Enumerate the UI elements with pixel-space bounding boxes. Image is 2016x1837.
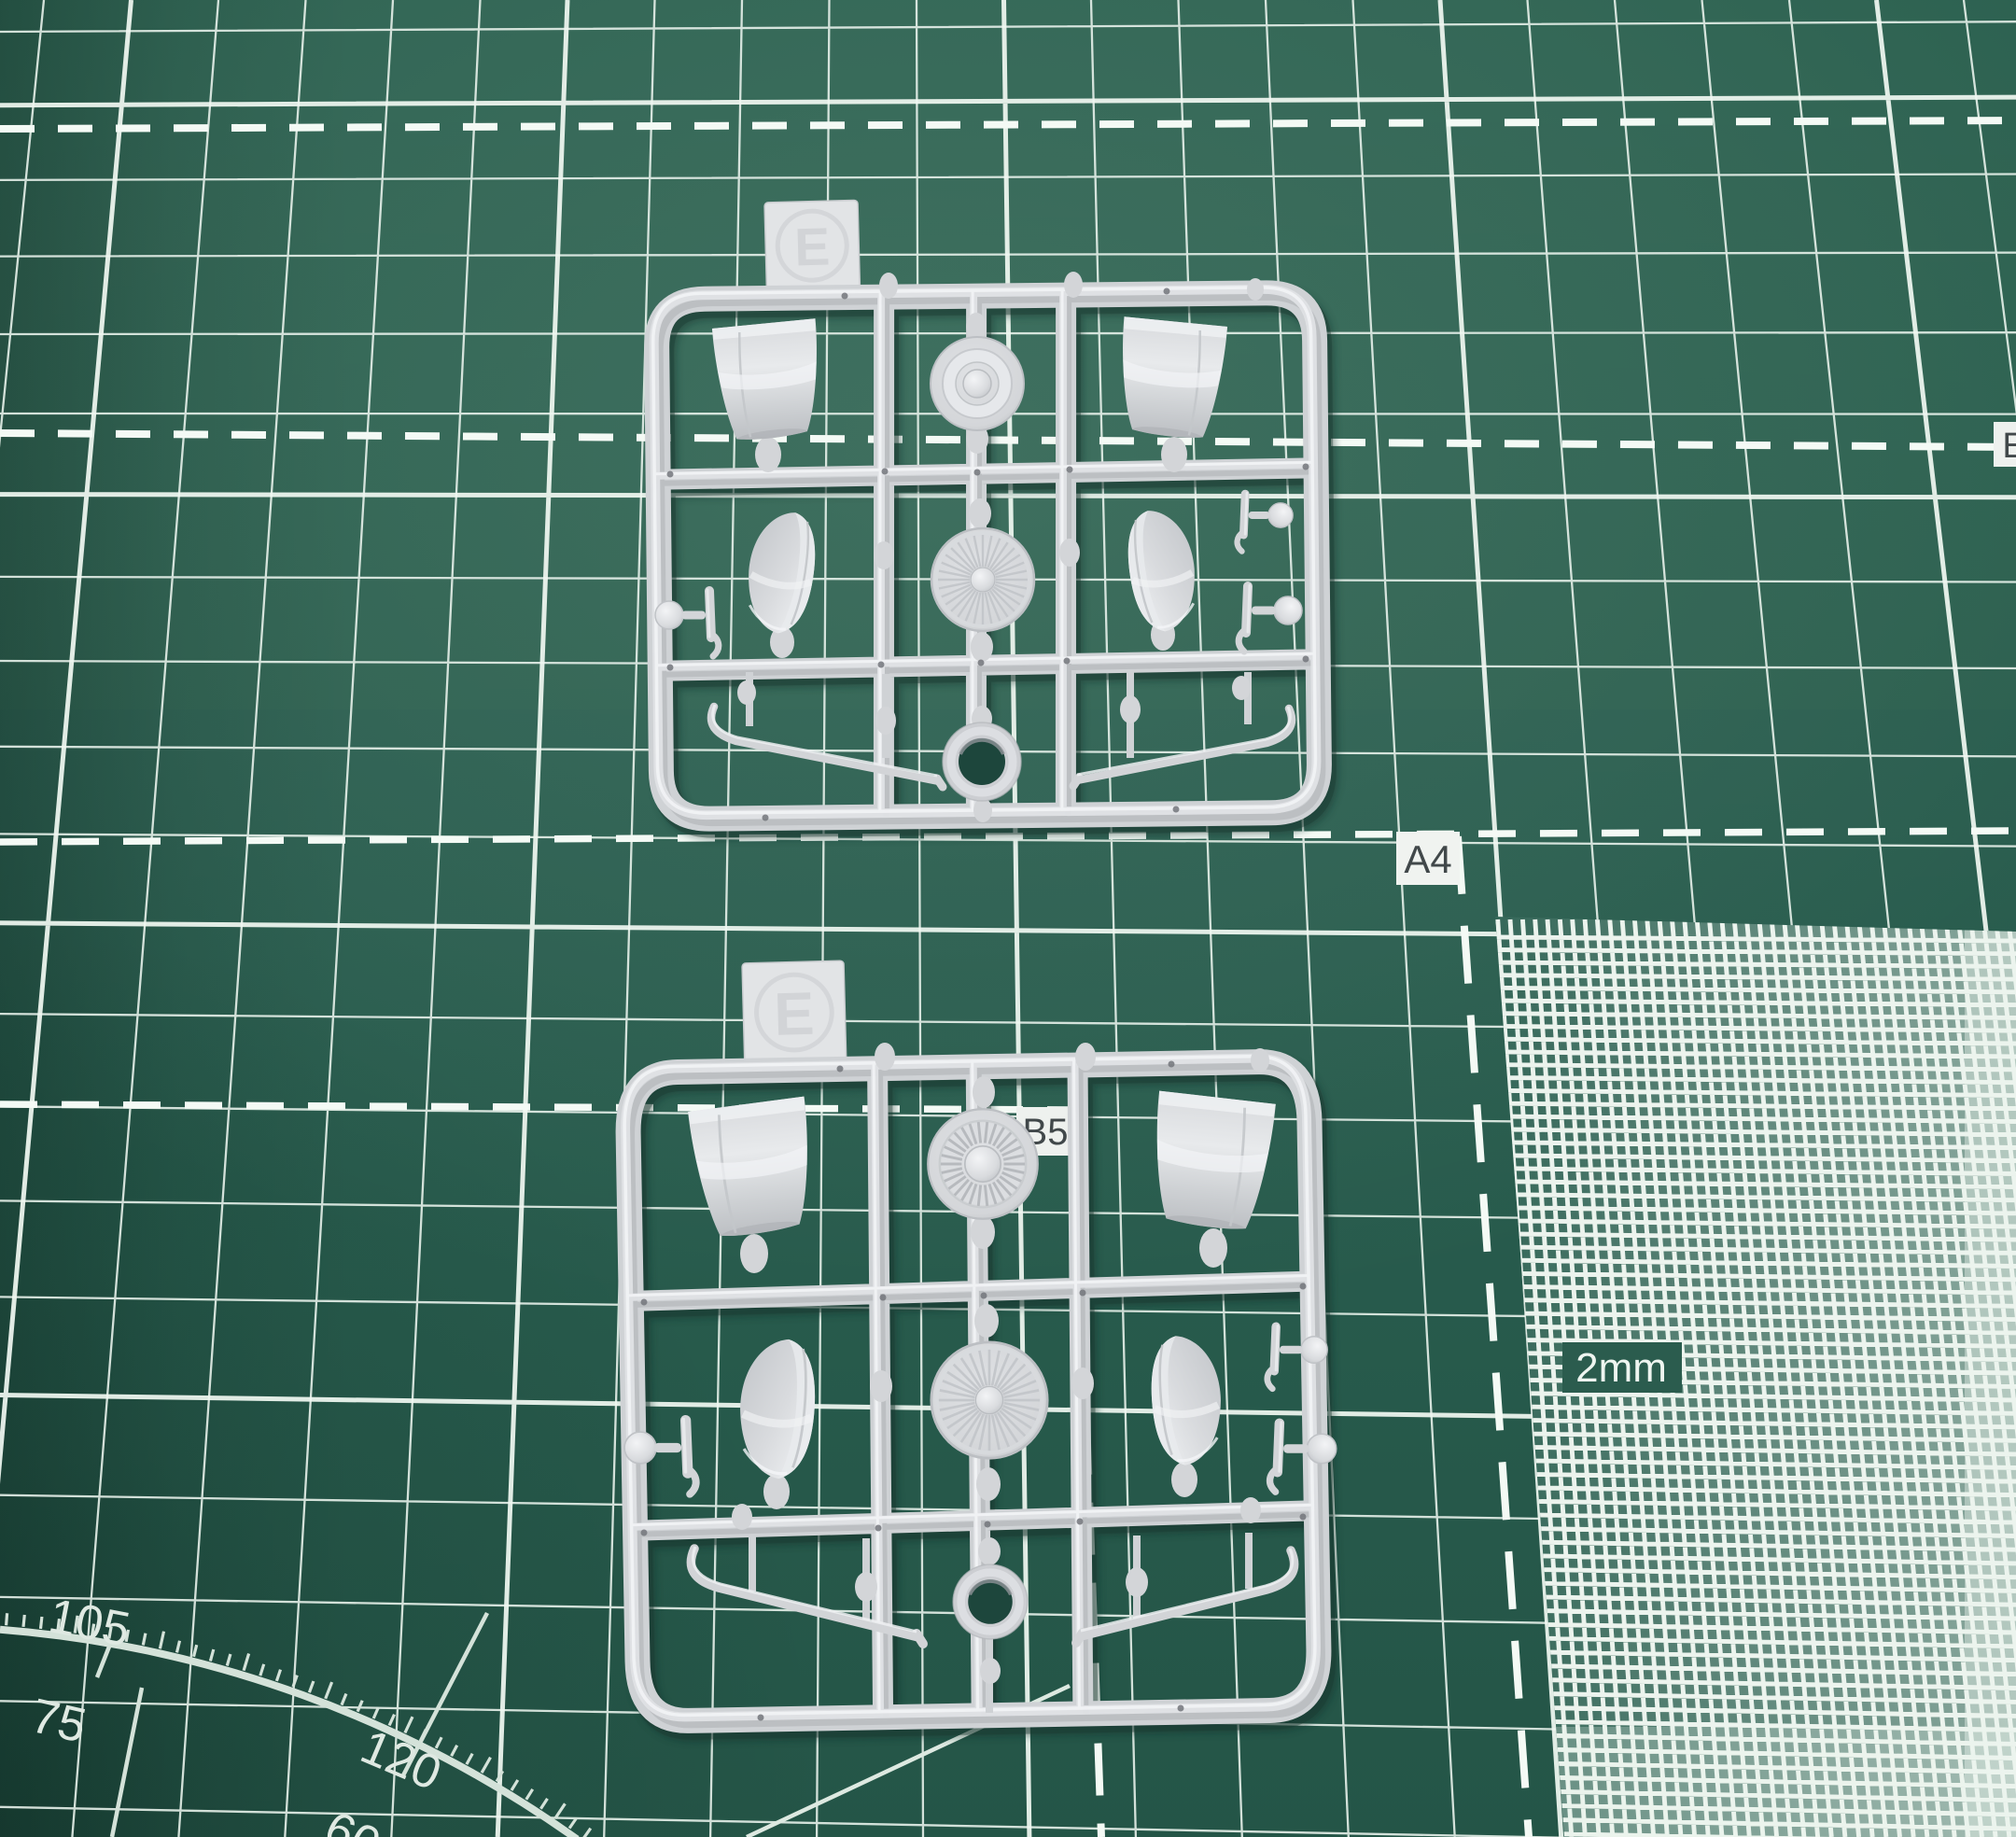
svg-text:2mm: 2mm [1575, 1345, 1667, 1391]
svg-text:E: E [2002, 427, 2016, 466]
svg-text:E: E [793, 217, 831, 278]
svg-text:A4: A4 [1404, 837, 1451, 881]
svg-text:E: E [773, 979, 815, 1048]
